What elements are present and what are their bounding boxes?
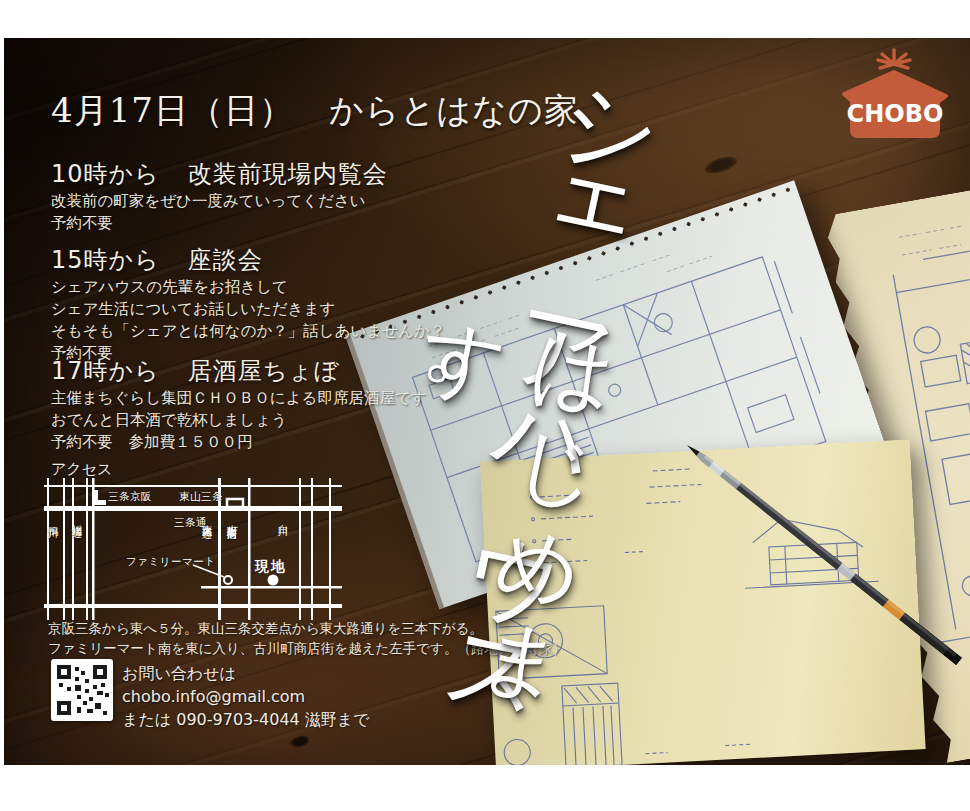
section-3-body: 主催まちぐらし集団ＣＨＯＢＯによる即席居酒屋です おでんと日本酒で乾杯しましょう… — [51, 387, 427, 453]
map-site-label: 現地 — [255, 558, 287, 576]
section-2-line: そもそも「シェアとは何なのか？」話しあいませんか？ — [51, 320, 445, 342]
section-3-time: 17時から — [51, 357, 160, 385]
section-1-name: 改装前現場内覧会 — [188, 160, 388, 188]
section-3-line: 主催まちぐらし集団ＣＨＯＢＯによる即席居酒屋です — [51, 387, 427, 409]
contact-phone: または 090-9703-4044 滋野まで — [122, 708, 370, 731]
map-street-furukawacho: 古川町商店街 — [227, 516, 238, 522]
chobo-logo: CHOBO — [840, 46, 952, 144]
section-2-body: シェアハウスの先輩をお招きして シェア生活についてお話しいただきます そもそも「… — [51, 276, 445, 364]
qr-code — [51, 659, 113, 721]
section-1-time: 10時から — [51, 160, 160, 188]
logo-text: CHOBO — [847, 100, 944, 128]
access-map: 三条京阪 東山三条 三条通 鴨川 川端通 東大路通 古川町商店街 白川 ファミリ… — [41, 478, 353, 620]
wood-knot — [289, 734, 311, 750]
section-3-line: 予約不要 参加費１５００円 — [51, 431, 427, 453]
section-1-line: 改装前の町家をぜひ一度みていってください — [51, 190, 366, 212]
contact-email: chobo.info@gmail.com — [122, 685, 370, 708]
event-flyer: 4月17日（日） からとはなの家 10時から改装前現場内覧会 改装前の町家をぜひ… — [0, 0, 970, 811]
map-river-shirakawa: 白川 — [278, 516, 289, 518]
section-2-heading: 15時から座談会 — [51, 244, 263, 276]
wood-knot — [703, 153, 740, 177]
contact-block: お問い合わせは chobo.info@gmail.com または 090-970… — [122, 662, 370, 732]
background-photo: 4月17日（日） からとはなの家 10時から改装前現場内覧会 改装前の町家をぜひ… — [4, 38, 970, 765]
section-1-heading: 10時から改装前現場内覧会 — [51, 158, 388, 190]
map-station-higashiyama-sanjo: 東山三条 — [179, 490, 223, 504]
contact-heading: お問い合わせは — [122, 662, 370, 685]
map-street-higashioji: 東大路通 — [202, 516, 213, 520]
map-river-kamo: 鴨川 — [48, 518, 59, 520]
section-2-name: 座談会 — [188, 246, 263, 274]
section-1-line: 予約不要 — [51, 212, 366, 234]
access-label: アクセス — [51, 460, 112, 479]
qr-pattern — [51, 659, 113, 721]
chobo-house-icon: CHOBO — [840, 46, 952, 140]
section-2-time: 15時から — [51, 246, 160, 274]
map-street-kawabata: 川端通 — [72, 516, 83, 519]
map-station-sanjo-keihan: 三条京阪 — [108, 490, 152, 504]
section-3-heading: 17時から居酒屋ちょぼ — [51, 355, 339, 387]
section-2-line: シェア生活についてお話しいただきます — [51, 298, 445, 320]
section-1-body: 改装前の町家をぜひ一度みていってください 予約不要 — [51, 190, 366, 234]
date-venue-title: 4月17日（日） からとはなの家 — [51, 88, 579, 134]
map-poi-familymart: ファミリーマート — [126, 555, 215, 569]
section-3-line: おでんと日本酒で乾杯しましょう — [51, 409, 427, 431]
section-3-name: 居酒屋ちょぼ — [188, 357, 340, 385]
section-2-line: シェアハウスの先輩をお招きして — [51, 276, 445, 298]
